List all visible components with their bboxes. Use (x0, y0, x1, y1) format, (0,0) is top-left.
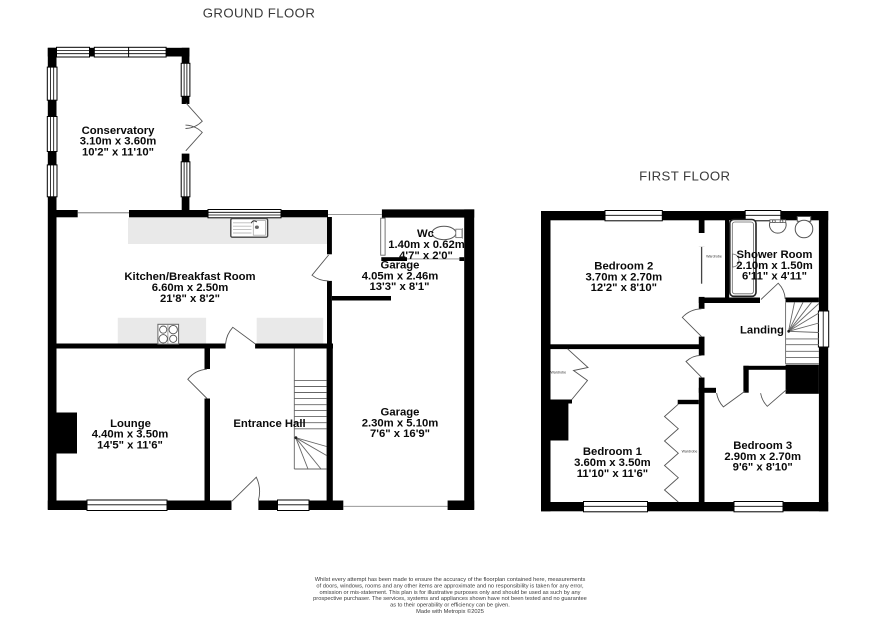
svg-text:6'11" x 4'11": 6'11" x 4'11" (742, 271, 807, 283)
svg-text:7'6" x 16'9": 7'6" x 16'9" (370, 428, 430, 440)
svg-text:10'2" x 11'10": 10'2" x 11'10" (82, 147, 154, 159)
svg-text:13'3" x 8'1": 13'3" x 8'1" (369, 281, 429, 293)
svg-text:Entrance Hall: Entrance Hall (233, 418, 305, 430)
svg-text:prospective purchaser. The ser: prospective purchaser. The services, sys… (313, 596, 587, 602)
svg-text:9'6" x 8'10": 9'6" x 8'10" (733, 462, 793, 474)
svg-text:12'2" x 8'10": 12'2" x 8'10" (591, 282, 657, 294)
svg-text:Wc: Wc (417, 228, 434, 240)
svg-text:of doors, windows, rooms and a: of doors, windows, rooms and any other i… (316, 583, 584, 589)
svg-text:21'8" x 8'2": 21'8" x 8'2" (160, 293, 220, 305)
svg-text:11'10" x 11'6": 11'10" x 11'6" (577, 468, 648, 480)
svg-text:FIRST FLOOR: FIRST FLOOR (639, 168, 730, 183)
svg-text:14'5" x 11'6": 14'5" x 11'6" (97, 439, 163, 451)
svg-text:GROUND FLOOR: GROUND FLOOR (203, 6, 316, 21)
svg-text:Wardrobe: Wardrobe (706, 254, 722, 258)
svg-text:Whilst every attempt has been: Whilst every attempt has been made to en… (315, 577, 586, 583)
svg-text:Wardrobe: Wardrobe (682, 450, 698, 454)
svg-text:Landing: Landing (740, 325, 784, 337)
svg-text:omission or mis-statement. Thi: omission or mis-statement. This plan is … (319, 590, 580, 596)
svg-text:Made with Metropix ©2025: Made with Metropix ©2025 (416, 608, 484, 615)
svg-text:Wardrobe: Wardrobe (550, 371, 566, 375)
svg-text:as to their operability or eff: as to their operability or efficiency ca… (390, 603, 510, 609)
